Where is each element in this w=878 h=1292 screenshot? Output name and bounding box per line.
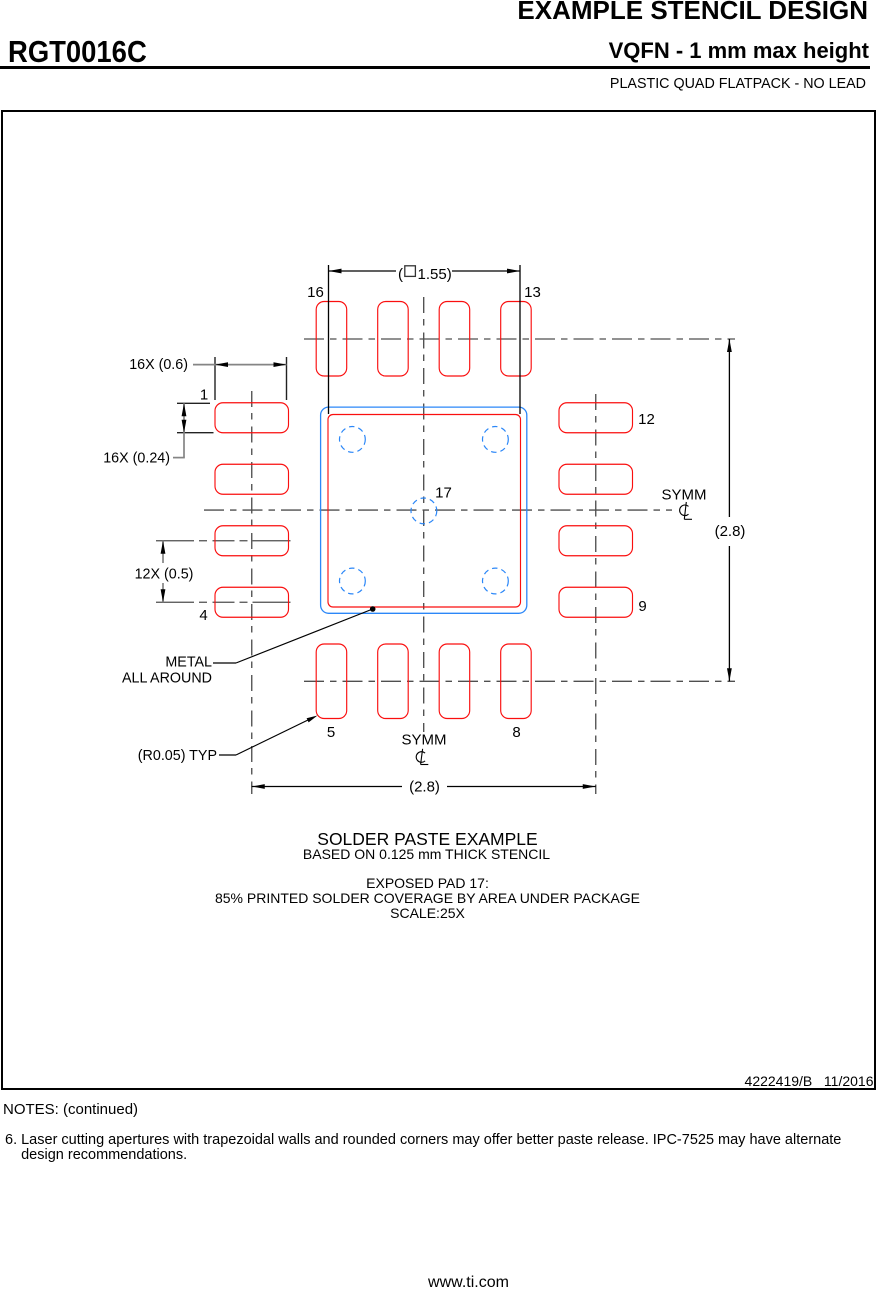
svg-text:(2.8): (2.8) bbox=[715, 523, 746, 540]
svg-text:16X (0.24): 16X (0.24) bbox=[103, 451, 170, 467]
svg-text:(: ( bbox=[398, 266, 403, 283]
svg-text:4: 4 bbox=[199, 607, 207, 624]
svg-text:13: 13 bbox=[524, 284, 541, 301]
svg-text:(R0.05) TYP: (R0.05) TYP bbox=[138, 748, 217, 764]
svg-text:12: 12 bbox=[638, 411, 655, 428]
svg-text:16: 16 bbox=[307, 284, 324, 301]
svg-text:8: 8 bbox=[512, 724, 520, 741]
svg-text:METAL: METAL bbox=[165, 655, 212, 671]
svg-text:5: 5 bbox=[327, 724, 335, 741]
svg-text:9: 9 bbox=[638, 598, 646, 615]
svg-text:SYMM: SYMM bbox=[402, 732, 447, 749]
svg-text:SYMM: SYMM bbox=[662, 487, 707, 504]
svg-text:12X (0.5): 12X (0.5) bbox=[135, 567, 194, 583]
svg-text:1: 1 bbox=[200, 387, 208, 404]
svg-text:1.55): 1.55) bbox=[418, 266, 452, 283]
svg-text:(2.8): (2.8) bbox=[409, 779, 440, 796]
svg-text:17: 17 bbox=[435, 485, 452, 502]
svg-text:ALL AROUND: ALL AROUND bbox=[122, 671, 212, 687]
svg-text:16X (0.6): 16X (0.6) bbox=[129, 357, 188, 373]
